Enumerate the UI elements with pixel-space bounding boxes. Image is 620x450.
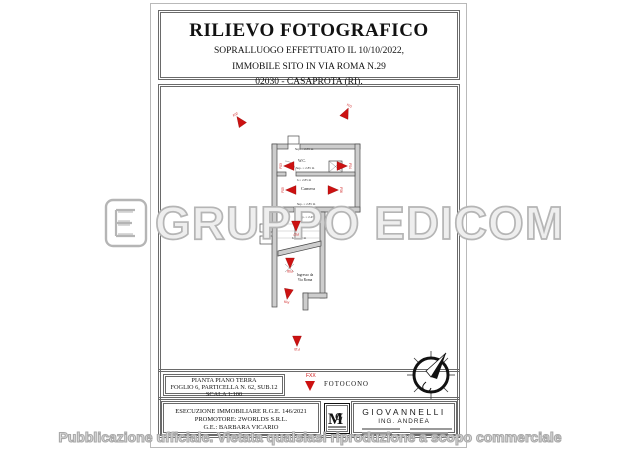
execution-box: ESECUZIONE IMMOBILIARE R.G.E. 146/2021 P… xyxy=(161,401,321,435)
subtitle-line-1: SOPRALLUOGO EFFETTUATO IL 10/10/2022, xyxy=(161,45,457,58)
surveyor-fineprint-line xyxy=(362,428,400,430)
surveyor-fineprint-line xyxy=(410,428,452,430)
title-box: RILIEVO FOTOGRAFICO SOPRALLUOGO EFFETTUA… xyxy=(158,10,460,80)
svg-text:G: G xyxy=(335,412,343,423)
execution-line-3: G.E.: BARBARA VICARIO xyxy=(164,424,318,432)
surveyor-title: ING. ANDREA xyxy=(354,418,454,425)
surveyor-fineprint-line xyxy=(410,432,448,434)
surveyor-fineprint-line xyxy=(362,432,392,434)
plan-info-line-3: SCALA 1:100 xyxy=(166,392,282,399)
legend-label: FOTOCONO xyxy=(324,381,369,388)
execution-line-1: ESECUZIONE IMMOBILIARE R.G.E. 146/2021 xyxy=(164,408,318,416)
edicom-logo-icon xyxy=(104,198,148,248)
north-compass-icon xyxy=(404,348,458,402)
subtitle-line-2: IMMOBILE SITO IN VIA ROMA N.29 xyxy=(161,61,457,74)
legend-marker-code: FXX xyxy=(306,373,316,379)
document-page: RILIEVO FOTOGRAFICO SOPRALLUOGO EFFETTUA… xyxy=(0,0,620,450)
page-title: RILIEVO FOTOGRAFICO xyxy=(161,20,457,42)
fotocono-legend: FXX FOTOCONO xyxy=(300,372,396,398)
studio-stamp-icon: M G xyxy=(324,403,350,434)
plan-info-box: PIANTA PIANO TERRA FOGLIO 6, PARTICELLA … xyxy=(163,374,285,396)
surveyor-name: GIOVANNELLI xyxy=(354,407,454,417)
surveyor-box: GIOVANNELLI ING. ANDREA xyxy=(351,401,457,435)
fotocono-triangle-icon xyxy=(303,380,317,392)
execution-line-2: PROMOTORE: 2WORLDS S.R.L. xyxy=(164,416,318,424)
